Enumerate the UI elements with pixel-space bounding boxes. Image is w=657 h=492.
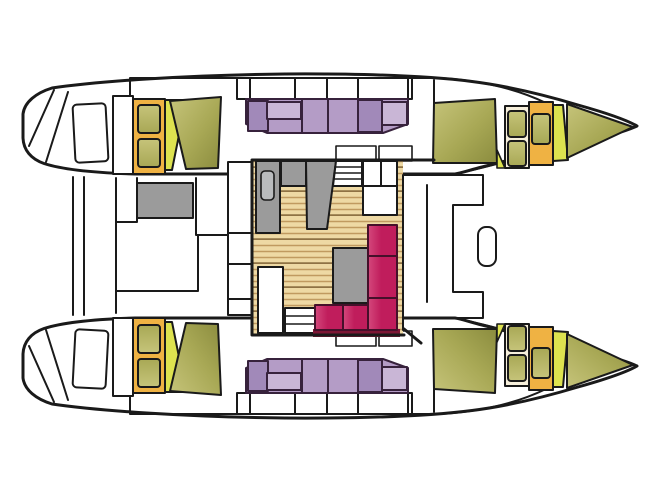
galley-counter-small xyxy=(281,161,306,186)
starboard-companionway-steps xyxy=(285,308,317,333)
catamaran-layout-diagram xyxy=(0,0,657,492)
layout-canvas xyxy=(0,0,657,492)
settee-cushion-v1 xyxy=(368,225,397,256)
settee-cushion-v2 xyxy=(368,256,397,298)
settee-cushion-h1 xyxy=(315,305,343,330)
saloon-cabinet-box xyxy=(258,267,283,333)
galley-sink xyxy=(261,171,274,200)
aft-cabinet-column xyxy=(228,162,252,315)
cockpit-table xyxy=(137,183,193,218)
foredeck-front xyxy=(403,175,496,330)
cockpit xyxy=(73,162,252,315)
settee-cushion-h2 xyxy=(343,305,368,330)
front-band-lines xyxy=(403,175,483,330)
foredeck-hatch-bump xyxy=(478,227,496,266)
aft-crossbeam-lines xyxy=(73,177,116,315)
settee-cushion-corner xyxy=(368,298,397,330)
saloon xyxy=(252,160,434,343)
saloon-table xyxy=(333,248,368,303)
